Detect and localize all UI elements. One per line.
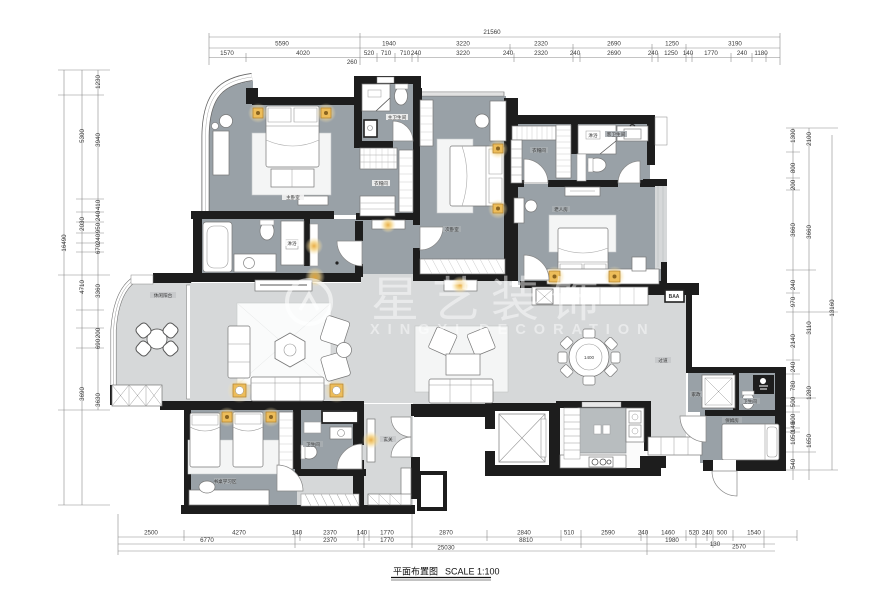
svg-text:520: 520 (689, 530, 700, 537)
svg-text:2870: 2870 (439, 530, 453, 537)
svg-text:1250: 1250 (664, 50, 678, 57)
svg-text:410: 410 (95, 199, 102, 210)
svg-text:1770: 1770 (380, 530, 394, 537)
svg-text:260: 260 (347, 59, 358, 66)
svg-text:710: 710 (381, 50, 392, 57)
svg-text:客卫生间: 客卫生间 (607, 131, 626, 138)
svg-text:SCALE 1:100: SCALE 1:100 (445, 567, 500, 577)
svg-text:BAA: BAA (669, 294, 680, 300)
svg-text:3690: 3690 (79, 387, 86, 401)
svg-text:500: 500 (717, 530, 728, 537)
svg-text:1650: 1650 (806, 434, 813, 448)
svg-text:670: 670 (95, 243, 102, 254)
svg-text:1400: 1400 (584, 355, 595, 360)
svg-text:老人房: 老人房 (554, 206, 568, 213)
svg-text:25030: 25030 (437, 545, 455, 552)
svg-text:5590: 5590 (275, 41, 289, 48)
svg-text:艺: 艺 (432, 274, 480, 327)
svg-text:1180: 1180 (754, 50, 768, 57)
svg-text:970: 970 (790, 296, 797, 307)
svg-text:1250: 1250 (665, 41, 679, 48)
svg-text:1770: 1770 (704, 50, 718, 57)
svg-text:家政: 家政 (691, 391, 701, 398)
svg-text:5300: 5300 (79, 129, 86, 143)
svg-text:140: 140 (292, 530, 303, 537)
svg-text:4020: 4020 (296, 50, 310, 57)
svg-text:1770: 1770 (380, 537, 394, 544)
svg-text:1460: 1460 (661, 530, 675, 537)
svg-text:510: 510 (564, 530, 575, 537)
svg-text:2100: 2100 (806, 132, 813, 146)
svg-text:3360: 3360 (95, 284, 102, 298)
svg-text:XINGYI DECORATION: XINGYI DECORATION (370, 322, 656, 338)
svg-text:13160: 13160 (829, 299, 836, 317)
svg-text:次卧室: 次卧室 (445, 226, 459, 233)
svg-text:卫生间: 卫生间 (743, 398, 757, 405)
svg-text:2320: 2320 (534, 50, 548, 57)
svg-text:6770: 6770 (200, 537, 214, 544)
svg-text:3220: 3220 (456, 41, 470, 48)
svg-text:保姆房: 保姆房 (725, 417, 739, 424)
svg-text:690: 690 (95, 338, 102, 349)
svg-text:过道: 过道 (658, 357, 668, 364)
svg-text:衣帽间: 衣帽间 (532, 147, 546, 154)
svg-text:2500: 2500 (144, 530, 158, 537)
svg-text:星: 星 (371, 274, 419, 327)
svg-text:3110: 3110 (806, 321, 813, 335)
svg-text:240: 240 (95, 210, 102, 221)
svg-text:装: 装 (491, 274, 539, 327)
svg-text:玄关: 玄关 (383, 436, 393, 443)
svg-text:平面布置图: 平面布置图 (393, 566, 438, 577)
svg-text:710: 710 (400, 50, 411, 57)
svg-text:21560: 21560 (483, 29, 501, 36)
svg-text:3660: 3660 (790, 223, 797, 237)
svg-text:3660: 3660 (806, 225, 813, 239)
svg-text:淋浴: 淋浴 (588, 132, 598, 139)
svg-text:2140: 2140 (790, 334, 797, 348)
svg-text:3630: 3630 (95, 393, 102, 407)
svg-text:240: 240 (737, 50, 748, 57)
svg-text:520: 520 (364, 50, 375, 57)
svg-text:8810: 8810 (519, 537, 533, 544)
svg-text:2590: 2590 (601, 530, 615, 537)
svg-text:3940: 3940 (95, 133, 102, 147)
svg-text:3220: 3220 (456, 50, 470, 57)
svg-text:1540: 1540 (747, 530, 761, 537)
svg-text:800: 800 (790, 162, 797, 173)
svg-text:240: 240 (790, 279, 797, 290)
svg-text:4710: 4710 (79, 280, 86, 294)
svg-text:240: 240 (790, 361, 797, 372)
svg-text:2320: 2320 (534, 41, 548, 48)
svg-text:1980: 1980 (665, 537, 679, 544)
svg-text:240: 240 (648, 50, 659, 57)
svg-text:500: 500 (790, 396, 797, 407)
svg-text:140: 140 (683, 50, 694, 57)
svg-text:200: 200 (95, 327, 102, 338)
svg-text:衣帽间: 衣帽间 (374, 180, 388, 187)
svg-text:主卧室: 主卧室 (286, 194, 300, 201)
svg-text:4270: 4270 (232, 530, 246, 537)
svg-text:130: 130 (710, 541, 721, 548)
svg-text:2690: 2690 (607, 41, 621, 48)
svg-text:780: 780 (790, 380, 797, 391)
svg-text:2690: 2690 (607, 50, 621, 57)
svg-text:1050: 1050 (790, 431, 797, 445)
svg-text:3190: 3190 (728, 41, 742, 48)
svg-text:2840: 2840 (517, 530, 531, 537)
svg-text:240: 240 (570, 50, 581, 57)
svg-text:140: 140 (357, 530, 368, 537)
svg-text:200: 200 (790, 179, 797, 190)
svg-text:2370: 2370 (323, 530, 337, 537)
svg-text:240: 240 (702, 530, 713, 537)
svg-text:950: 950 (95, 222, 102, 233)
svg-text:卫生间: 卫生间 (306, 441, 320, 448)
svg-text:140: 140 (790, 421, 797, 432)
svg-text:240: 240 (95, 233, 102, 244)
svg-text:淋浴: 淋浴 (287, 240, 297, 247)
svg-text:240: 240 (411, 50, 422, 57)
svg-text:1280: 1280 (806, 386, 813, 400)
svg-text:16490: 16490 (61, 234, 68, 252)
svg-text:1230: 1230 (95, 75, 102, 89)
svg-text:240: 240 (638, 530, 649, 537)
svg-text:2570: 2570 (732, 544, 746, 551)
svg-text:540: 540 (790, 458, 797, 469)
svg-text:休闲阳台: 休闲阳台 (154, 292, 173, 299)
svg-text:240: 240 (503, 50, 514, 57)
svg-text:饰: 饰 (551, 274, 599, 327)
svg-text:书桌学习区: 书桌学习区 (214, 478, 237, 485)
svg-text:1940: 1940 (382, 41, 396, 48)
svg-text:1570: 1570 (220, 50, 234, 57)
svg-text:2030: 2030 (79, 217, 86, 231)
svg-text:1300: 1300 (790, 129, 797, 143)
svg-text:主卫生间: 主卫生间 (388, 114, 407, 121)
svg-text:2370: 2370 (323, 537, 337, 544)
